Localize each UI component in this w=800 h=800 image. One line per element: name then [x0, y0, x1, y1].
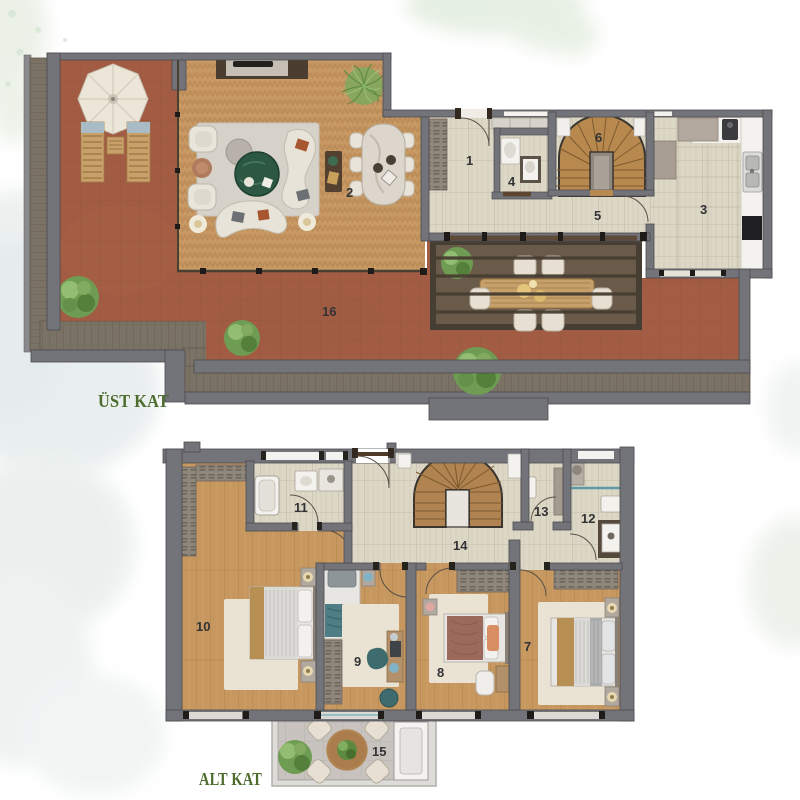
svg-text:11: 11	[294, 500, 308, 515]
svg-text:13: 13	[534, 504, 548, 519]
svg-text:6: 6	[595, 130, 602, 145]
svg-text:12: 12	[581, 511, 595, 526]
svg-text:7: 7	[524, 639, 531, 654]
svg-text:16: 16	[322, 304, 336, 319]
svg-text:9: 9	[354, 654, 361, 669]
svg-text:3: 3	[700, 202, 707, 217]
svg-text:2: 2	[346, 185, 353, 200]
svg-text:15: 15	[372, 744, 386, 759]
svg-text:5: 5	[594, 208, 601, 223]
svg-text:4: 4	[508, 174, 516, 189]
svg-text:ÜST KAT: ÜST KAT	[98, 391, 169, 411]
svg-text:8: 8	[437, 665, 444, 680]
svg-text:10: 10	[196, 619, 210, 634]
svg-text:1: 1	[466, 153, 473, 168]
svg-text:ALT KAT: ALT KAT	[199, 769, 262, 789]
svg-text:14: 14	[453, 538, 468, 553]
